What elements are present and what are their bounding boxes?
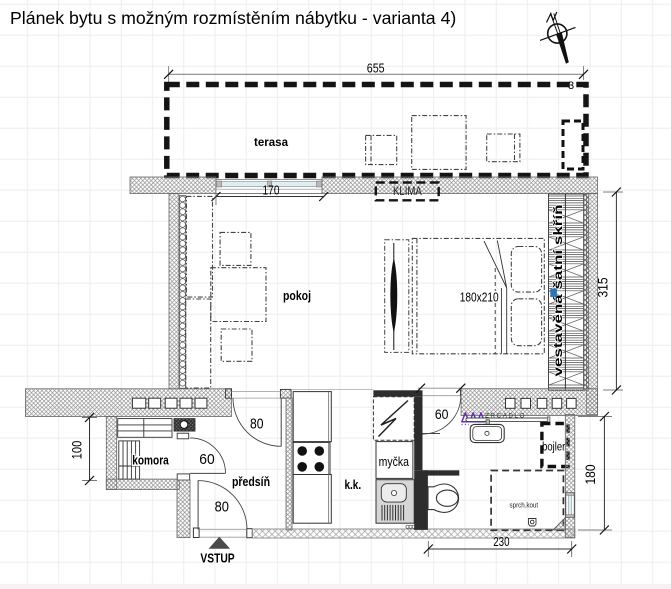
svg-text:bojler: bojler (542, 442, 565, 454)
svg-text:180x210: 180x210 (460, 289, 499, 304)
svg-text:100: 100 (70, 441, 85, 460)
svg-text:230: 230 (493, 535, 509, 549)
svg-text:k.k.: k.k. (344, 478, 361, 492)
svg-text:3: 3 (568, 80, 574, 92)
svg-text:komora: komora (132, 453, 169, 467)
svg-text:VSTUP: VSTUP (200, 551, 234, 565)
svg-text:terasa: terasa (254, 137, 289, 149)
svg-text:předsíň: předsíň (232, 474, 270, 489)
svg-text:myčka: myčka (379, 455, 409, 469)
svg-text:Plánek bytu s možným rozmístěn: Plánek bytu s možným rozmístěním nábytku… (10, 8, 456, 28)
svg-text:sprch.kout: sprch.kout (510, 500, 539, 509)
svg-text:80: 80 (250, 415, 264, 432)
svg-text:180: 180 (582, 464, 598, 484)
svg-text:170: 170 (263, 182, 280, 197)
svg-text:pokoj: pokoj (283, 288, 311, 303)
svg-text:60: 60 (199, 451, 214, 468)
svg-text:655: 655 (367, 60, 385, 75)
svg-text:315: 315 (595, 277, 611, 297)
svg-text:KLIMA: KLIMA (393, 186, 422, 198)
svg-text:80: 80 (215, 498, 229, 515)
svg-text:60: 60 (435, 407, 449, 422)
